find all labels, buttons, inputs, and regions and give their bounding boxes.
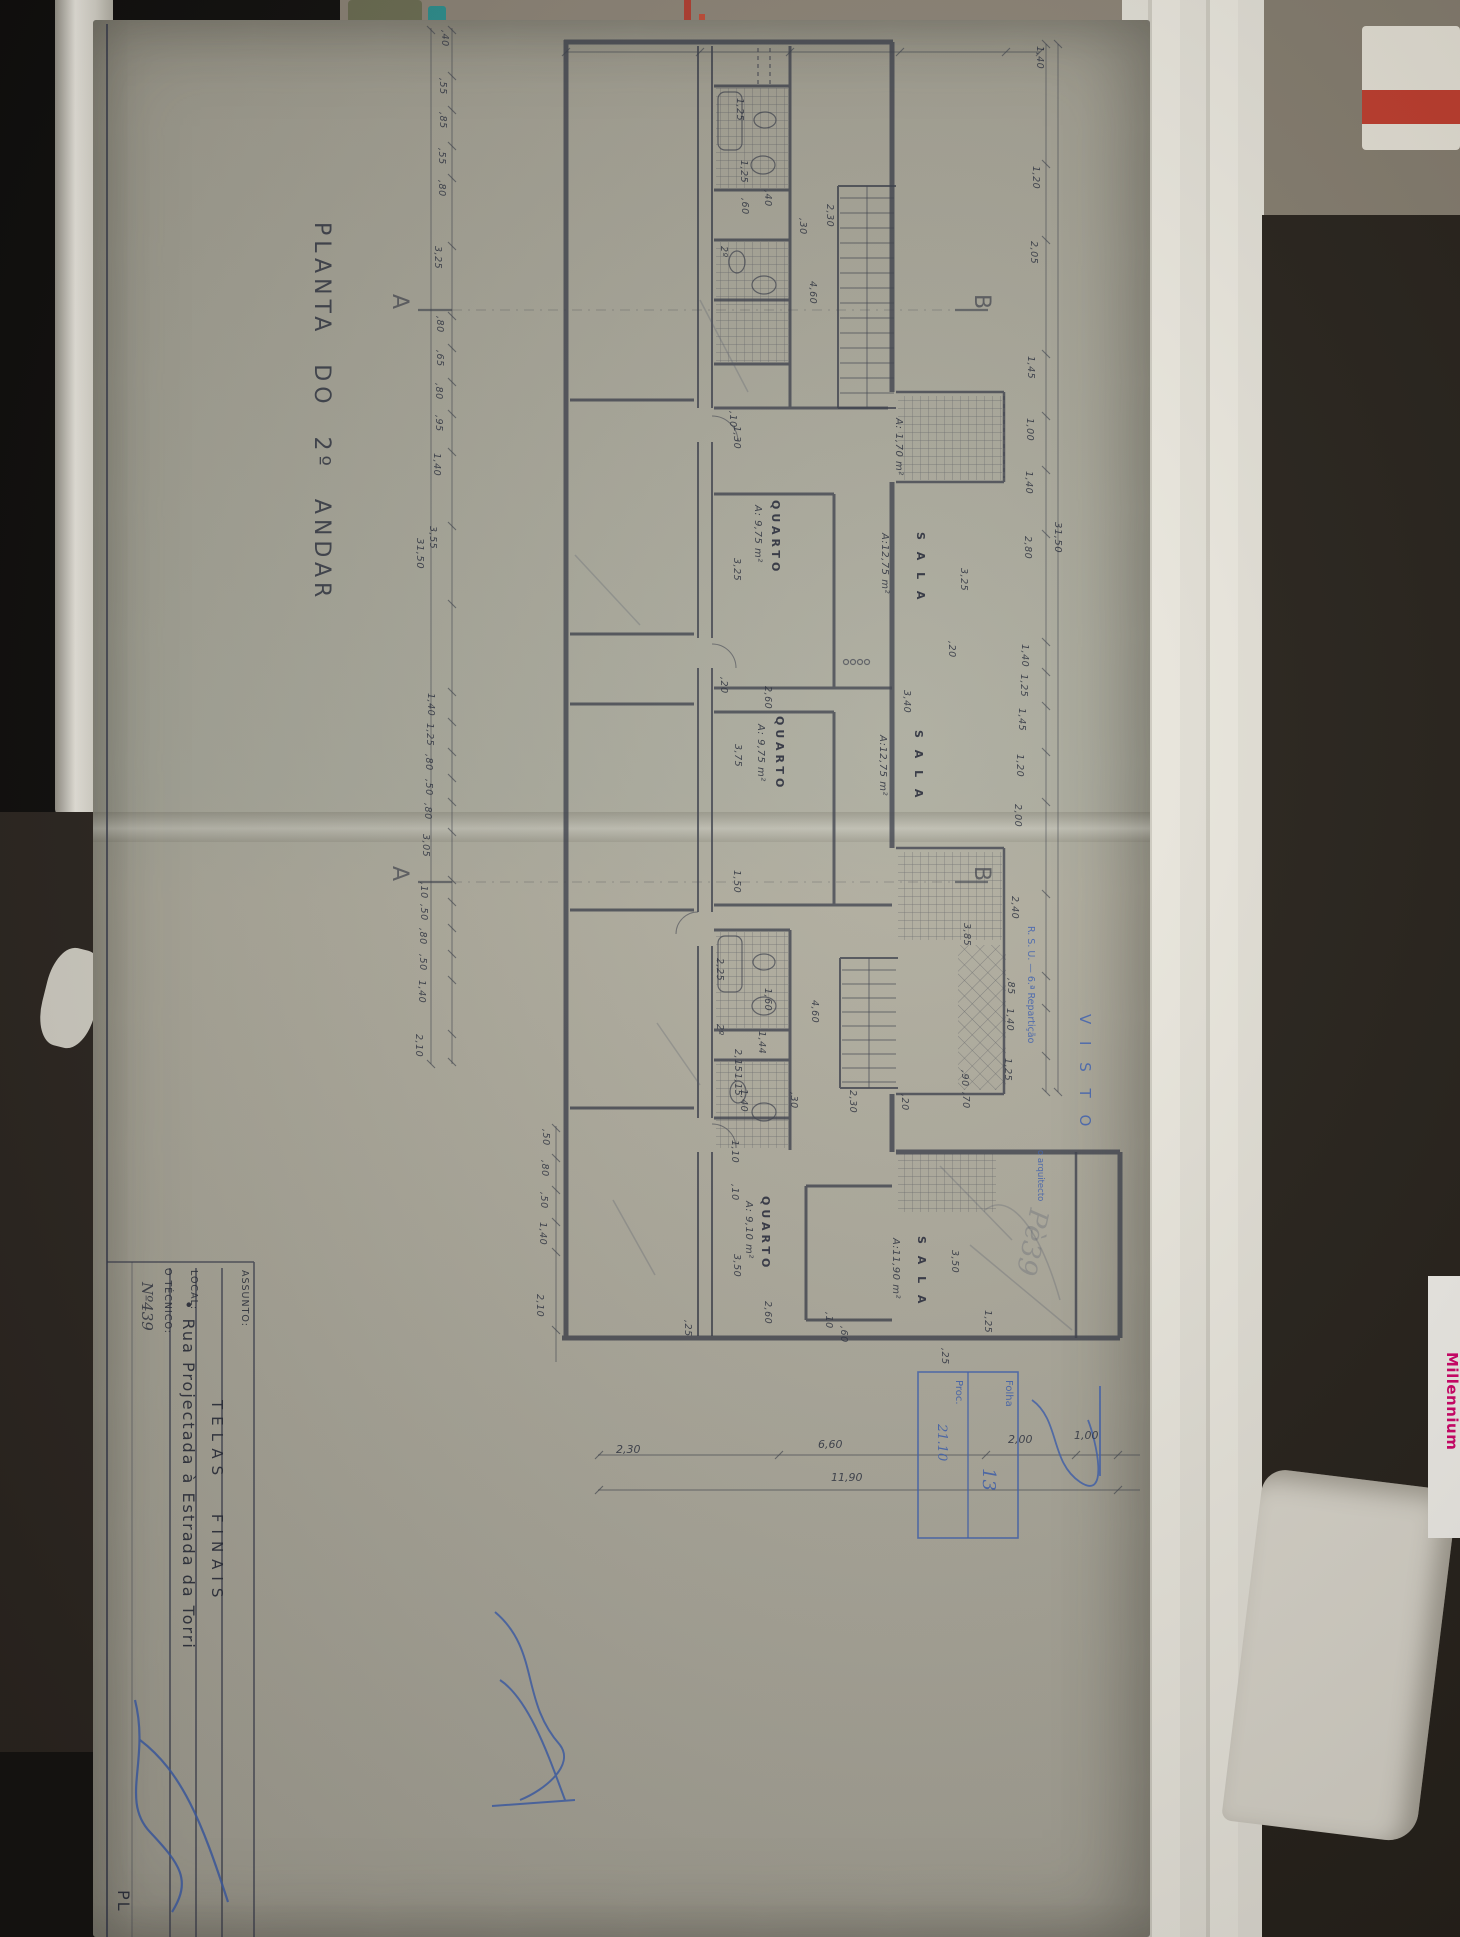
plan-label: A: 9,10 m² [743,1201,753,1259]
visto-stamp-title: V I S T O [1077,1014,1092,1132]
title-block-tecnico-number: Nº439 [139,1282,154,1331]
plan-label: 4,60 [810,1000,820,1023]
plan-label: 1,40 [1020,644,1030,667]
title-block-assunto-value: TELAS FINAIS [209,1400,224,1604]
plan-label: 3,05 [421,834,431,857]
plan-label: A:11,90 m² [890,1238,900,1299]
plan-label: 1,40 [432,453,442,476]
plan-label: ,80 [437,180,447,197]
floor-plan-drawing [0,0,1460,1937]
plan-label: 2,05 [1029,241,1039,264]
plan-label: 2,40 [1010,896,1020,919]
plan-label: 2º [715,1024,725,1036]
walls [562,40,1120,1338]
plan-label: 2,00 [1013,804,1023,827]
plan-label: 1,30 [732,426,742,449]
plan-label: 2,10 [414,1034,424,1057]
title-block-tecnico-label: O TÉCNICO: [163,1268,173,1334]
plan-label: ,10 [824,1312,834,1329]
plan-label: B [970,866,992,881]
plan-label: 3,25 [732,558,742,581]
plan-label: 1,25 [425,723,435,746]
plan-label: A:12,75 m² [877,735,887,796]
plan-label: 6,60 [818,1439,843,1450]
plan-label: 3,85 [962,923,972,946]
plan-label: QUARTO [760,1196,771,1271]
plan-label: ,50 [418,954,428,971]
plan-label: ,70 [961,1092,971,1109]
proc-stamp-value: 21.10 [935,1424,948,1461]
plan-label: 11,90 [831,1472,863,1483]
plan-label: 1,25 [739,160,749,183]
plan-label: A: 9,75 m² [755,724,765,782]
plan-label: ,80 [424,754,434,771]
plan-label: 1,45 [1026,356,1036,379]
photo-of-floor-plan: PLANTA DO 2º ANDAR ASSUNTO: TELAS FINAIS… [0,0,1460,1937]
plan-label: 2,30 [848,1090,858,1113]
plan-label: ,80 [434,383,444,400]
plan-label: S A L A [915,532,926,603]
technician-signature [135,1700,228,1912]
plan-label: 1,40 [1024,471,1034,494]
plan-label: ,85 [1006,978,1016,995]
plan-label: 4,60 [808,281,818,304]
title-block-next-cell: PL [115,1890,131,1913]
plan-label: 1,50 [732,870,742,893]
plan-label: A [388,294,410,309]
folha-stamp-label: Folha [1003,1380,1013,1407]
plan-label: 3,40 [902,690,912,713]
plan-label: ,25 [940,1348,950,1365]
stair-rail [867,186,869,1088]
plan-label: 3,55 [428,526,438,549]
plan-label: ,95 [434,415,444,432]
plan-label: 3,25 [433,246,443,269]
plan-label: ,10 [419,882,429,899]
plan-label: ,50 [539,1192,549,1209]
plan-label: ,40 [440,30,450,47]
plan-label: ,55 [438,78,448,95]
folha-stamp-value: 13 [979,1468,997,1491]
title-block-assunto-label: ASSUNTO: [240,1270,250,1327]
plan-label: ,10 [730,1184,740,1201]
plan-label: ,65 [435,350,445,367]
plan-label: QUARTO [770,500,781,575]
plan-label: ,80 [540,1160,550,1177]
plan-label: 1,00 [1074,1430,1099,1441]
plan-label: 1,00 [1025,418,1035,441]
plan-label: ,80 [418,928,428,945]
plan-label: 2,25 [715,958,725,981]
plan-label: ,50 [541,1129,551,1146]
drawing-title: PLANTA DO 2º ANDAR [310,222,332,602]
plan-label: 1,40 [1035,46,1045,69]
plan-label: 2,60 [763,1301,773,1324]
plan-label: 1,25 [983,1310,993,1333]
plan-label: QUARTO [774,716,785,791]
title-block-local-value: • Rua Projectada à Estrada da Torri [180,1300,196,1650]
plan-label: 1,25 [735,98,745,121]
door-swings [676,416,738,1148]
visto-stamp-department: R. S. U. — 6.ª Repartição [1026,926,1036,1043]
plan-label: 31,50 [1052,522,1062,553]
visto-stamp-signatory: o arquitecto [1036,1150,1045,1201]
plan-label: A: 9,75 m² [752,505,762,563]
plan-label: B [970,294,992,309]
millennium-logo: Millennium [1444,1352,1459,1450]
plan-label: S A L A [916,1236,927,1307]
plan-label: ,85 [438,112,448,129]
plan-label: ,40 [763,190,773,207]
plan-label: 1,45 [1017,708,1027,731]
plan-label: A:12,75 m² [879,533,889,594]
plan-label: 1,20 [1015,754,1025,777]
plan-label: 2,80 [1023,536,1033,559]
plan-label: A [388,866,410,881]
plan-label: ,50 [419,904,429,921]
plan-label: ,30 [789,1092,799,1109]
plan-label: 3,25 [959,568,969,591]
plan-label: 3,50 [732,1254,742,1277]
plan-label: 3,50 [950,1250,960,1273]
plan-label: 1,40 [417,980,427,1003]
plan-label: 1,44 [757,1031,767,1054]
plan-label: 2,60 [763,686,773,709]
plan-label: 1,60 [763,988,773,1011]
plan-label: 1,40 [739,1089,749,1112]
plan-label: ,30 [798,218,808,235]
plan-label: 2,30 [825,204,835,227]
plan-label: 2,15 [733,1049,743,1072]
plan-label: 2º [719,246,729,258]
plan-label: 1,40 [426,693,436,716]
plan-label: ,20 [947,641,957,658]
proc-stamp-label: Proc. [953,1380,963,1405]
plan-label: 1,40 [538,1222,548,1245]
stair-treads [840,198,896,1082]
plan-label: 31,50 [414,538,424,569]
plan-label: ,20 [900,1094,910,1111]
plan-label: 1,25 [1003,1058,1013,1081]
plan-label: 3,75 [733,744,743,767]
plan-label: ,55 [437,148,447,165]
plan-label: 1,20 [1031,166,1041,189]
plan-label: 1,25 [1019,674,1029,697]
plan-label: 1,10 [730,1140,740,1163]
plan-label: ,25 [683,1320,693,1337]
plan-label: ,90 [960,1070,970,1087]
plan-label: 2,00 [1008,1434,1033,1445]
plan-label: 2,10 [535,1294,545,1317]
plan-label: 1,40 [1005,1008,1015,1031]
plan-label: ,50 [424,779,434,796]
sheet-frame [107,24,254,1937]
plan-label: ,80 [423,803,433,820]
plan-label: S A L A [913,730,924,801]
approval-signature [492,1612,575,1806]
plan-label: ,60 [740,198,750,215]
plan-label: ,80 [435,316,445,333]
plan-label: ,60 [839,1326,849,1343]
plan-label: ,20 [719,677,729,694]
plan-label: A: 1,70 m² [893,418,903,476]
plan-label: 2,30 [616,1444,641,1455]
